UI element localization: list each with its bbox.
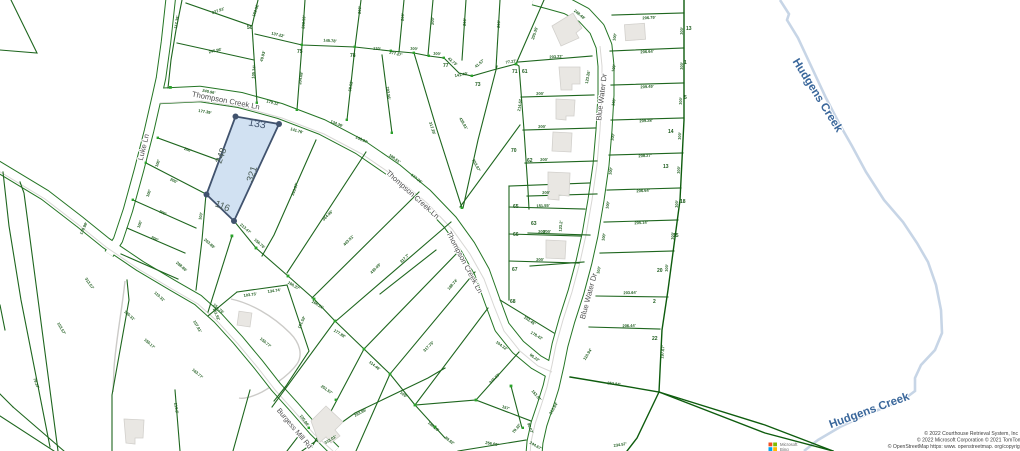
svg-text:151.55': 151.55' bbox=[536, 203, 549, 208]
svg-text:70: 70 bbox=[511, 148, 517, 154]
svg-text:5: 5 bbox=[684, 95, 687, 101]
svg-text:209.49': 209.49' bbox=[640, 84, 653, 90]
svg-text:206.44': 206.44' bbox=[622, 323, 635, 328]
svg-text:63: 63 bbox=[531, 221, 537, 227]
svg-text:200': 200' bbox=[496, 20, 502, 28]
svg-text:61: 61 bbox=[522, 69, 528, 75]
svg-text:130': 130' bbox=[373, 46, 381, 52]
svg-text:100': 100' bbox=[679, 27, 685, 35]
svg-text:200': 200' bbox=[357, 6, 363, 14]
svg-text:65: 65 bbox=[513, 204, 519, 210]
svg-text:62: 62 bbox=[527, 158, 533, 164]
svg-text:123.2': 123.2' bbox=[558, 220, 564, 231]
svg-text:50: 50 bbox=[247, 25, 253, 31]
svg-text:203.64': 203.64' bbox=[623, 290, 636, 295]
svg-text:208.27': 208.27' bbox=[638, 153, 651, 159]
svg-text:206.64': 206.64' bbox=[636, 188, 649, 194]
svg-text:Bing: Bing bbox=[780, 447, 789, 451]
svg-text:66: 66 bbox=[513, 232, 519, 238]
svg-text:© OpenStreetMap https: www. op: © OpenStreetMap https: www. openstreetma… bbox=[888, 443, 1020, 450]
svg-text:2: 2 bbox=[653, 299, 656, 305]
svg-text:67: 67 bbox=[512, 267, 518, 273]
svg-text:100': 100' bbox=[433, 51, 441, 57]
svg-text:1: 1 bbox=[684, 60, 687, 66]
svg-text:18: 18 bbox=[680, 199, 686, 205]
svg-text:75: 75 bbox=[297, 49, 303, 55]
svg-text:200': 200' bbox=[538, 124, 546, 129]
svg-text:15: 15 bbox=[673, 233, 679, 239]
svg-text:200': 200' bbox=[430, 17, 436, 25]
svg-text:200': 200' bbox=[400, 13, 406, 21]
svg-text:77: 77 bbox=[443, 63, 449, 69]
svg-text:200': 200' bbox=[538, 229, 546, 234]
svg-text:200': 200' bbox=[536, 91, 544, 96]
svg-text:78: 78 bbox=[350, 53, 356, 59]
svg-text:© 2022 Microsoft Corporation ©: © 2022 Microsoft Corporation © 2021 TomT… bbox=[917, 437, 1020, 444]
svg-text:100': 100' bbox=[678, 97, 684, 105]
svg-text:22: 22 bbox=[652, 336, 658, 342]
svg-text:100': 100' bbox=[677, 132, 683, 140]
svg-text:20: 20 bbox=[657, 268, 663, 274]
svg-text:© 2022 Courthouse Retrieval Sy: © 2022 Courthouse Retrieval System, Inc bbox=[924, 430, 1018, 437]
svg-text:200': 200' bbox=[540, 157, 548, 162]
svg-text:100': 100' bbox=[676, 166, 682, 174]
svg-text:209.28': 209.28' bbox=[639, 118, 652, 124]
svg-text:71: 71 bbox=[512, 69, 518, 75]
svg-text:145.78': 145.78' bbox=[323, 38, 337, 44]
svg-text:100': 100' bbox=[410, 46, 418, 52]
svg-text:203.22': 203.22' bbox=[549, 54, 562, 60]
svg-text:13: 13 bbox=[663, 164, 669, 170]
svg-text:100': 100' bbox=[664, 264, 670, 272]
svg-text:200': 200' bbox=[542, 190, 550, 195]
svg-text:73: 73 bbox=[475, 82, 481, 88]
svg-text:68: 68 bbox=[510, 299, 516, 305]
svg-text:206.64': 206.64' bbox=[640, 49, 653, 55]
svg-text:200': 200' bbox=[462, 18, 468, 26]
svg-text:14: 14 bbox=[668, 129, 674, 135]
svg-text:100': 100' bbox=[674, 200, 680, 208]
svg-text:206.79': 206.79' bbox=[642, 15, 655, 21]
svg-text:205.14': 205.14' bbox=[634, 220, 647, 226]
svg-text:200': 200' bbox=[536, 257, 544, 262]
svg-text:13: 13 bbox=[686, 26, 692, 32]
